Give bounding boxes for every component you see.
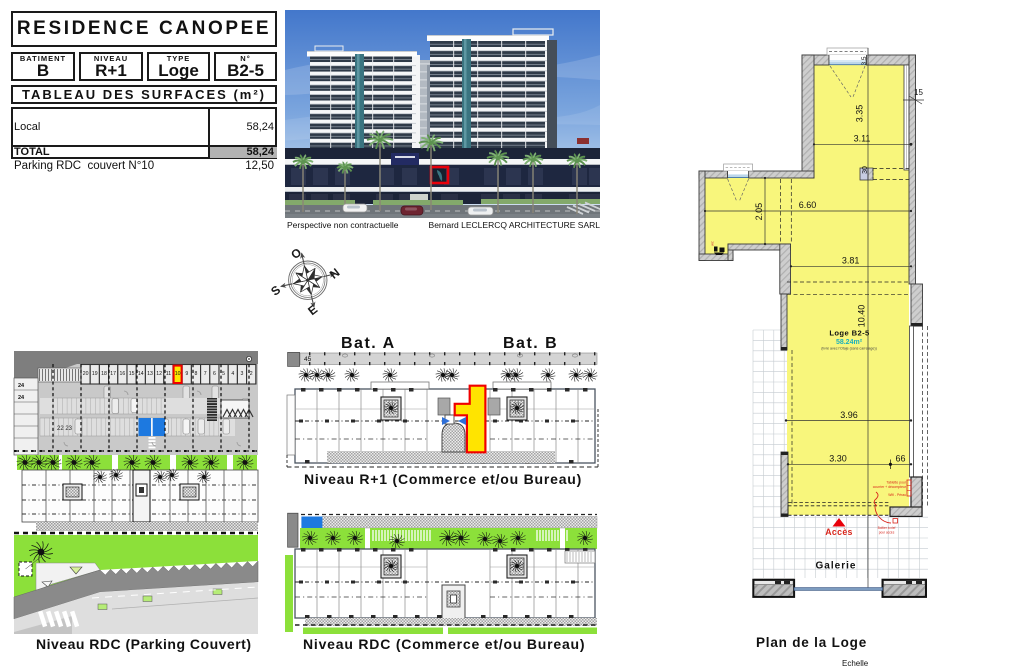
svg-text:18: 18 <box>101 371 107 377</box>
svg-text:Tablette pour: Tablette pour <box>886 481 906 485</box>
svg-text:Accès: Accès <box>825 527 852 537</box>
svg-text:N: N <box>327 265 342 281</box>
svg-text:6: 6 <box>213 371 216 377</box>
svg-text:Loge B2-5: Loge B2-5 <box>829 329 870 338</box>
svg-text:pour accès: pour accès <box>879 531 895 535</box>
svg-text:3.96: 3.96 <box>840 410 858 420</box>
svg-text:20: 20 <box>83 371 89 377</box>
svg-text:3.11: 3.11 <box>854 134 871 144</box>
svg-text:courrier + décompteur: courrier + décompteur <box>873 485 907 489</box>
svg-text:12: 12 <box>156 371 162 377</box>
svg-text:15: 15 <box>129 371 135 377</box>
svg-text:S: S <box>268 283 283 299</box>
svg-text:24: 24 <box>18 383 25 389</box>
svg-text:O: O <box>288 245 304 262</box>
svg-text:4: 4 <box>231 371 234 377</box>
svg-text:WC: WC <box>711 240 715 246</box>
svg-text:10.40: 10.40 <box>857 305 867 328</box>
svg-text:30: 30 <box>862 166 869 174</box>
svg-text:13: 13 <box>147 371 153 377</box>
svg-text:(livré avec l'Otaje (sans carr: (livré avec l'Otaje (sans carrelage)) <box>821 347 877 351</box>
svg-text:3.30: 3.30 <box>829 454 847 464</box>
svg-text:2: 2 <box>250 371 253 377</box>
svg-text:3: 3 <box>241 371 244 377</box>
svg-text:3.35: 3.35 <box>855 105 865 123</box>
svg-text:5: 5 <box>222 371 225 377</box>
svg-text:9: 9 <box>185 371 188 377</box>
svg-text:15: 15 <box>914 88 923 97</box>
svg-text:17: 17 <box>110 371 116 377</box>
svg-text:6.60: 6.60 <box>799 200 817 210</box>
svg-text:11: 11 <box>166 371 171 377</box>
svg-text:10: 10 <box>175 371 181 377</box>
svg-text:16: 16 <box>120 371 126 377</box>
svg-text:3.81: 3.81 <box>842 256 860 266</box>
svg-text:66: 66 <box>895 454 905 464</box>
svg-text:Wifi - Pérau: Wifi - Pérau <box>888 493 906 497</box>
svg-text:2.05: 2.05 <box>754 203 764 221</box>
svg-text:Boîtier à clef: Boîtier à clef <box>878 526 896 530</box>
svg-text:24: 24 <box>18 395 25 401</box>
svg-text:14: 14 <box>138 371 144 377</box>
svg-text:22 23: 22 23 <box>57 426 73 432</box>
svg-text:E: E <box>305 302 320 318</box>
svg-text:19: 19 <box>92 371 98 377</box>
svg-text:45: 45 <box>304 356 312 363</box>
svg-text:8: 8 <box>195 371 198 377</box>
svg-text:Galerie: Galerie <box>816 561 857 572</box>
svg-text:3.5: 3.5 <box>861 56 868 65</box>
svg-text:58.24m²: 58.24m² <box>836 339 863 346</box>
svg-text:7: 7 <box>204 371 207 377</box>
